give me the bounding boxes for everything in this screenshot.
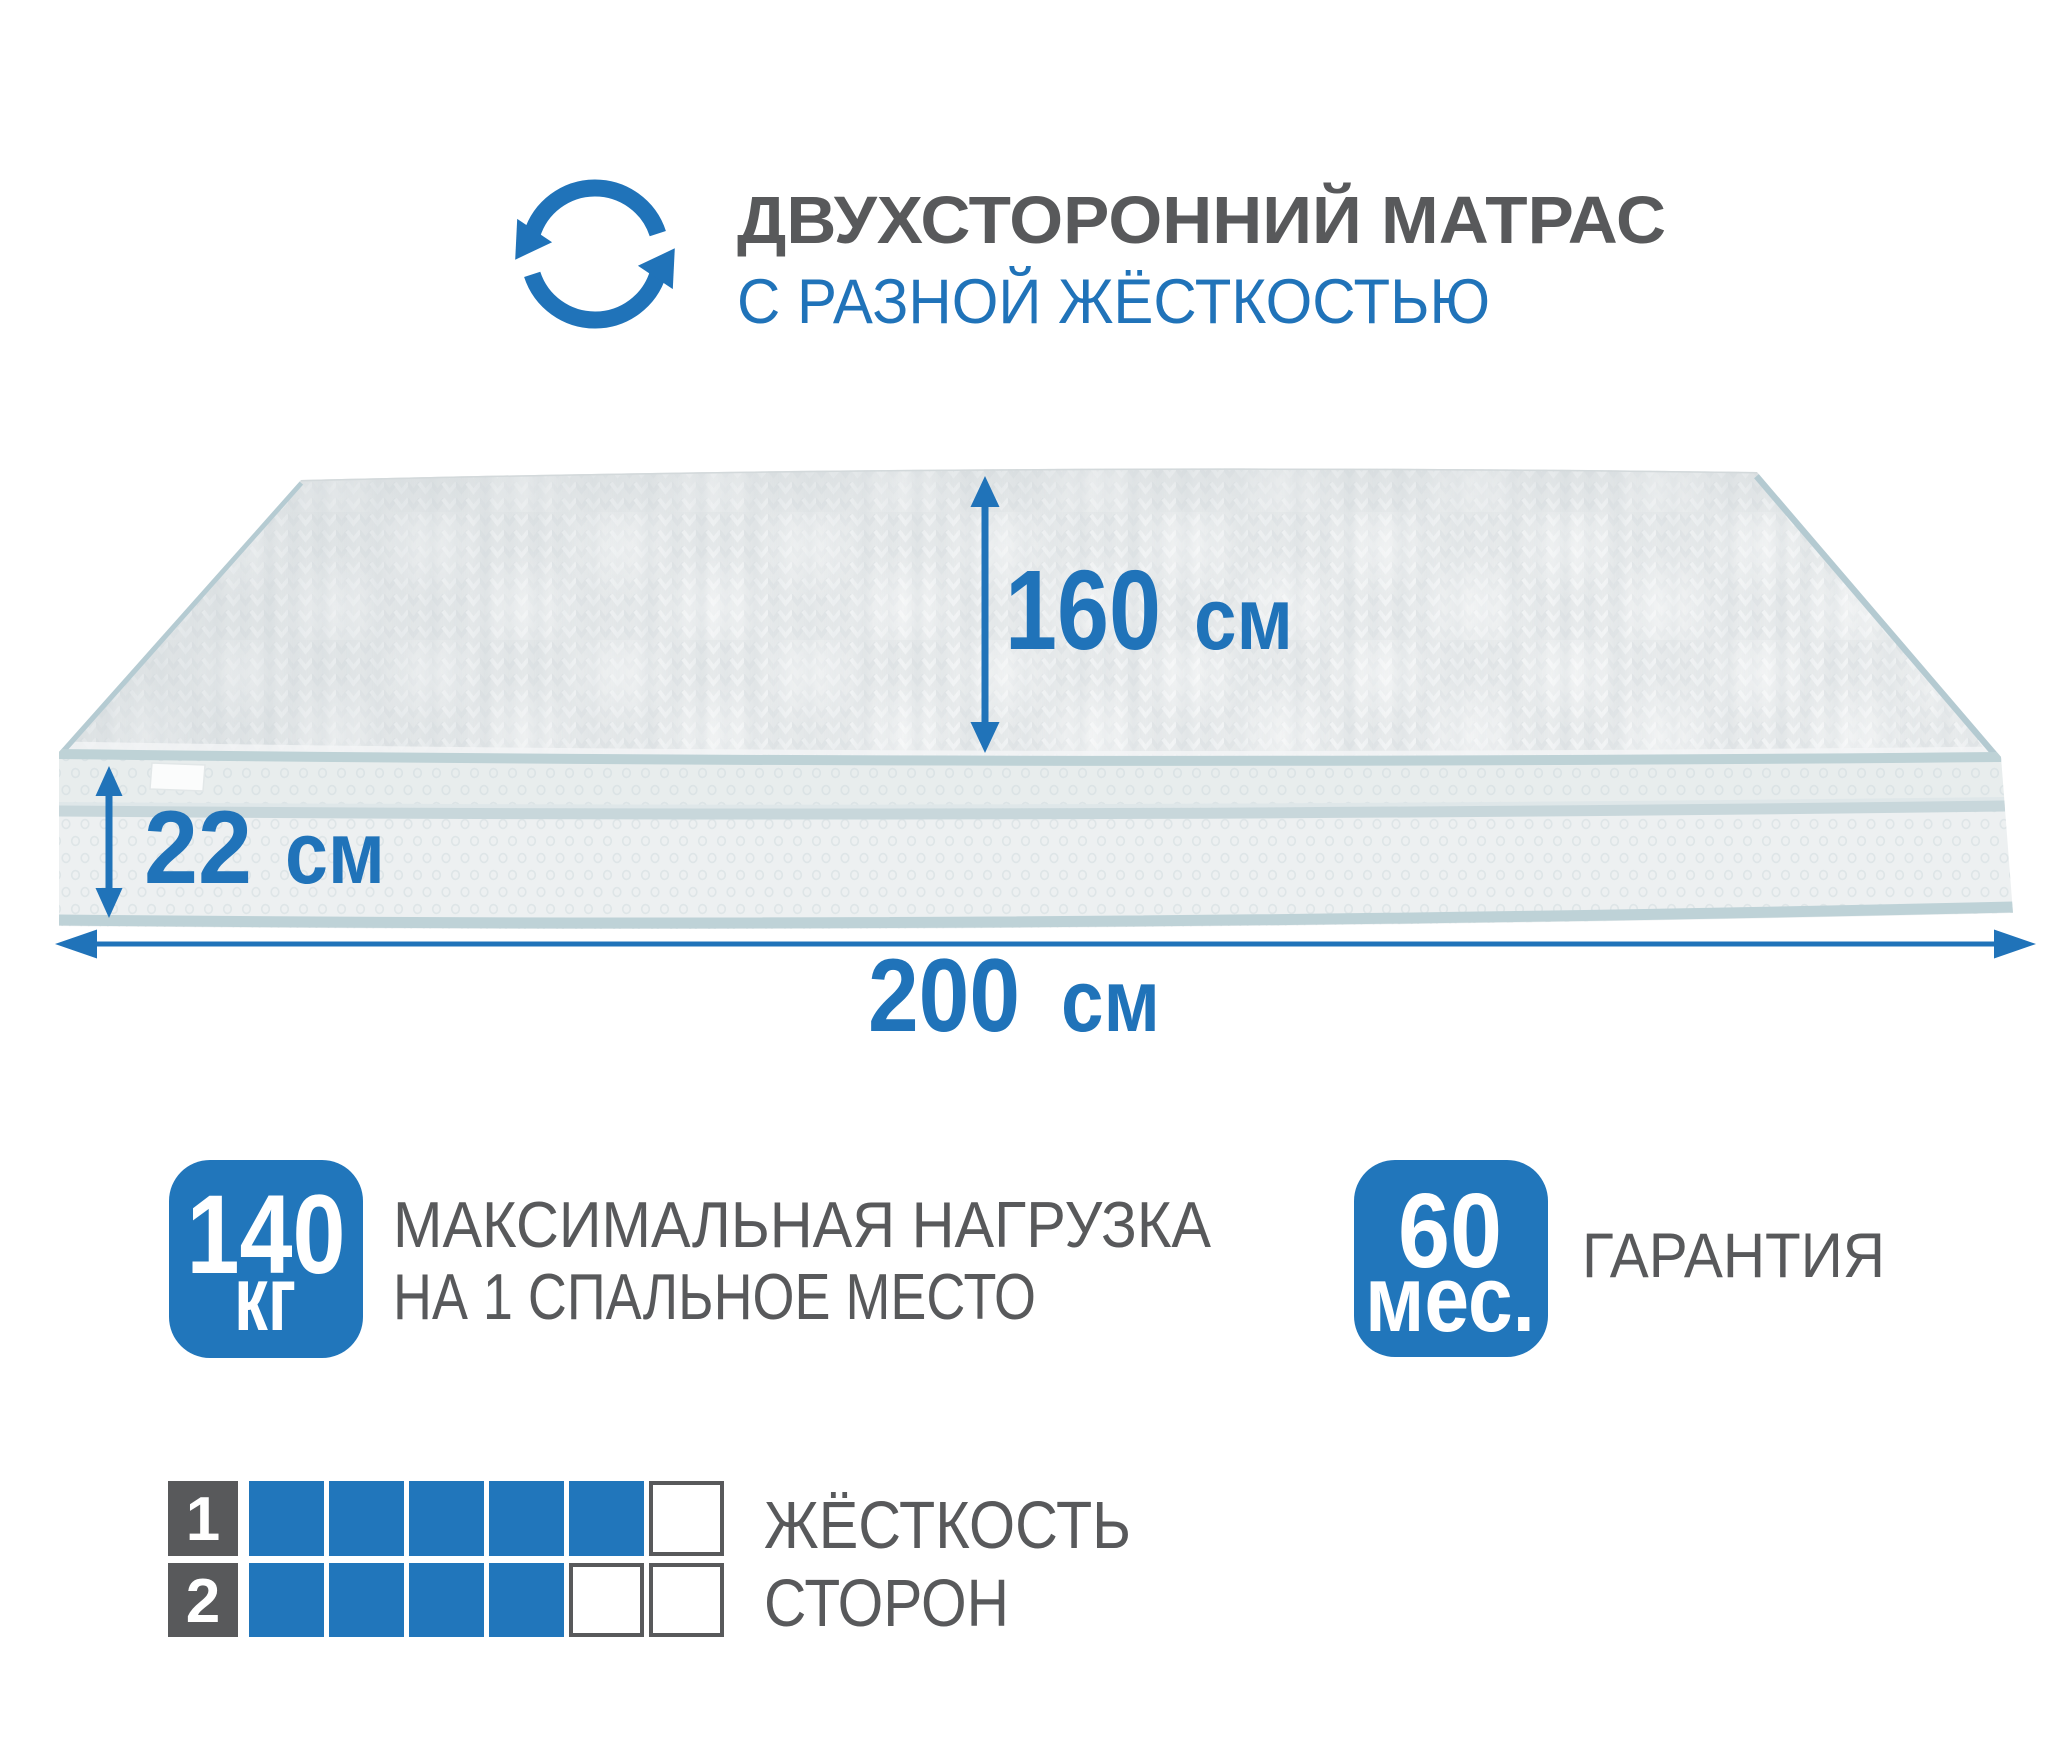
- svg-text:200: 200: [868, 938, 1020, 1054]
- svg-text:мес.: мес.: [1365, 1246, 1535, 1351]
- svg-text:1: 1: [186, 1485, 220, 1554]
- svg-text:НА 1 СПАЛЬНОЕ МЕСТО: НА 1 СПАЛЬНОЕ МЕСТО: [393, 1260, 1036, 1333]
- svg-text:ЖЁСТКОСТЬ: ЖЁСТКОСТЬ: [764, 1488, 1131, 1563]
- svg-text:кг: кг: [234, 1248, 296, 1350]
- svg-text:СТОРОН: СТОРОН: [764, 1566, 1009, 1641]
- svg-text:160: 160: [1005, 547, 1161, 673]
- svg-text:ДВУХСТОРОННИЙ МАТРАС: ДВУХСТОРОННИЙ МАТРАС: [737, 182, 1666, 258]
- svg-text:МАКСИМАЛЬНАЯ НАГРУЗКА: МАКСИМАЛЬНАЯ НАГРУЗКА: [393, 1188, 1212, 1261]
- svg-text:С РАЗНОЙ ЖЁСТКОСТЬЮ: С РАЗНОЙ ЖЁСТКОСТЬЮ: [737, 266, 1490, 337]
- svg-text:2: 2: [186, 1567, 220, 1636]
- svg-text:22: 22: [144, 790, 252, 906]
- svg-text:см: см: [1061, 951, 1160, 1050]
- svg-text:см: см: [1194, 569, 1293, 668]
- svg-text:ГАРАНТИЯ: ГАРАНТИЯ: [1582, 1221, 1885, 1291]
- svg-text:см: см: [285, 803, 385, 902]
